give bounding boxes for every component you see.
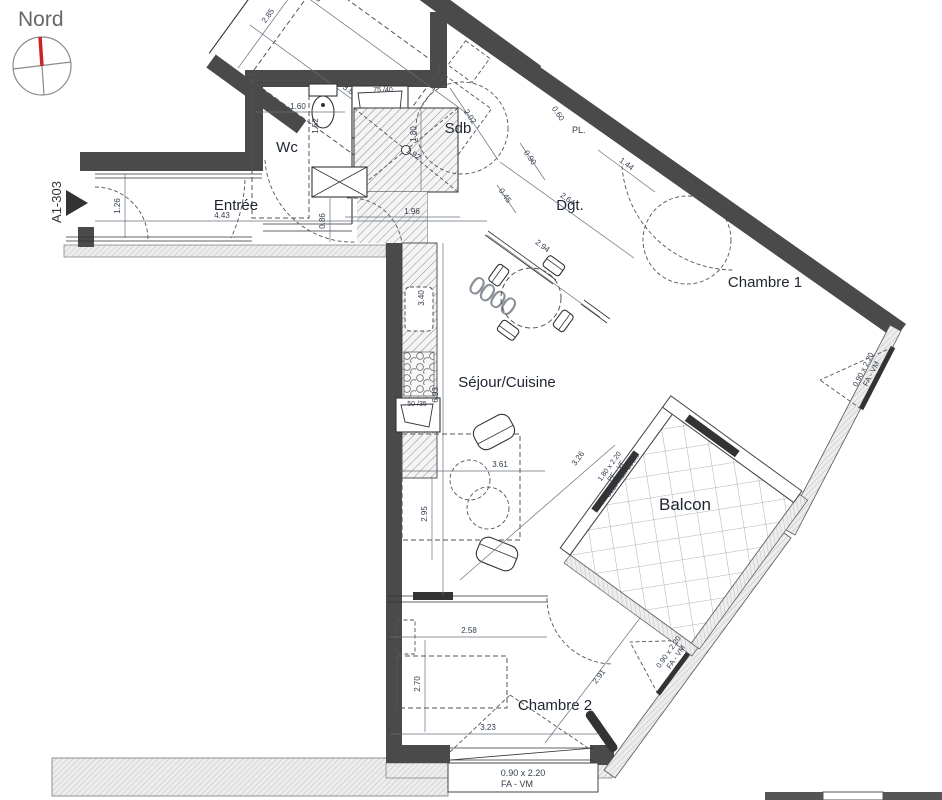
dim-sejour-diag: 3.26 <box>570 449 587 467</box>
dim-ch2-a: 2.58 <box>461 626 477 635</box>
room-label-wc: Wc <box>276 139 298 156</box>
dim-ch2-c: 3.23 <box>480 723 496 732</box>
dim-sejour-w: 3.61 <box>492 460 508 469</box>
dim-ch1-width: 2.85 <box>260 6 277 24</box>
dim-entree-len: 4.43 <box>214 211 230 220</box>
unit-tag: A1-303 <box>49 181 88 223</box>
tv-bench <box>413 592 453 600</box>
balcony-group: 1.80 x 2.20 PF - VF Seuil maxi 25cm <box>546 389 810 657</box>
dim-shower-w: 1.80 <box>409 126 418 142</box>
entry-arrow-icon <box>66 190 88 216</box>
room-label-chambre2: Chambre 2 <box>518 697 592 714</box>
dim-ch2-d: 2.91 <box>591 667 608 685</box>
north-compass <box>13 37 71 95</box>
dim-entree-depth: 1.26 <box>113 198 122 214</box>
dim-kitchen-len: 6.93 <box>431 387 440 403</box>
room-label-chambre1: Chambre 1 <box>728 274 802 291</box>
turning-circle-ch1 <box>643 196 731 284</box>
floor-plan-page: 1.80 x 2.20 PF - VF Seuil maxi 25cm Balc… <box>0 0 942 800</box>
dish-rack <box>404 352 434 396</box>
unit-label: A1-303 <box>49 181 64 223</box>
bottom-window-size: 0.90 x 2.20 <box>501 768 546 778</box>
kitchen <box>396 243 440 478</box>
sink-label: 50 /35 <box>407 401 427 408</box>
dim-dgt-a: 0.45 <box>497 187 514 205</box>
dim-ch2-b: 2.70 <box>413 676 422 692</box>
scale-bar <box>765 792 942 800</box>
room-label-sdb: Sdb <box>445 120 472 137</box>
room-label-sejour: Séjour/Cuisine <box>458 374 556 391</box>
dim-kitchen-d: 3.40 <box>417 290 426 306</box>
dim-sejour-h: 2.95 <box>420 506 429 522</box>
dim-dgt-b: 0.90 <box>522 149 539 167</box>
compass-label: Nord <box>18 8 64 31</box>
dim-hall-len: 1.96 <box>404 207 420 216</box>
vestibule-tiles <box>357 192 427 243</box>
vanity-label: 75 /40 <box>373 87 393 94</box>
dim-dgt-c: 1.44 <box>618 156 636 173</box>
dim-pl-depth: 0.60 <box>550 105 567 123</box>
dim-hall-w: 0.86 <box>318 213 327 229</box>
bottom-window-type: FA - VM <box>501 779 533 789</box>
floor-plan-drawing: 1.80 x 2.20 PF - VF Seuil maxi 25cm Balc… <box>0 0 942 800</box>
dim-ch1-length: 4.15 <box>305 0 323 4</box>
dim-wc-depth: 1.52 <box>311 118 320 134</box>
north-needle <box>40 37 42 66</box>
room-label-balcon: Balcon <box>659 495 711 514</box>
dim-wc-width: 1.60 <box>290 102 306 111</box>
room-label-pl: PL. <box>572 125 586 135</box>
diagonal-wing: 40 /65 4.15 3.85 2.85 0.60 x 2.20 PF - <box>0 0 541 226</box>
dim-sejour-top: 2.94 <box>534 238 552 255</box>
